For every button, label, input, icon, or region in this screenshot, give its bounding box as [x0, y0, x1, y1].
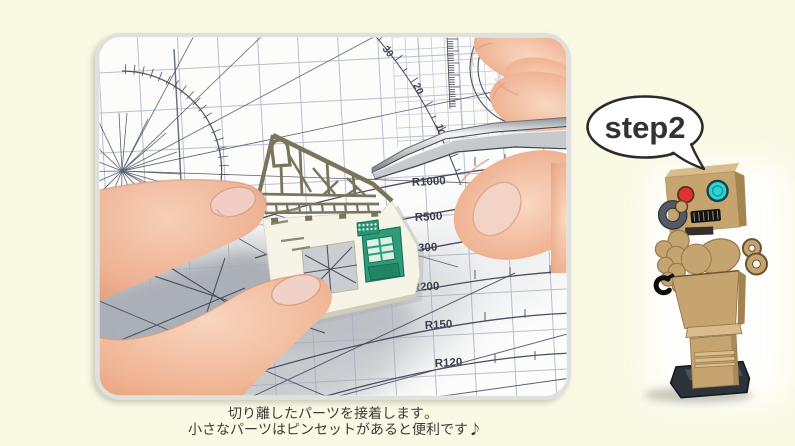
svg-text:step2: step2: [605, 110, 686, 145]
